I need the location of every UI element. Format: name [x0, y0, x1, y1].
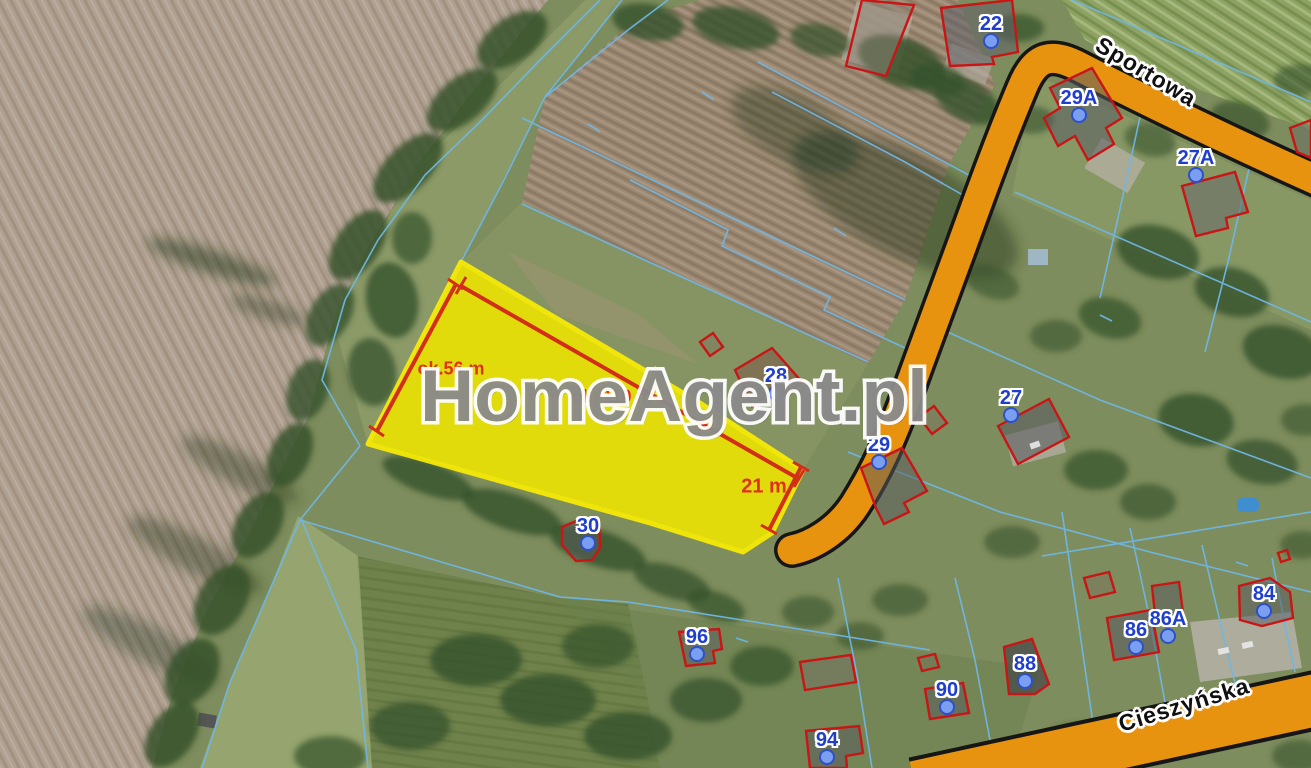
greenhouse: [1028, 249, 1048, 265]
building-86: [1107, 610, 1159, 660]
building-90: [925, 683, 969, 719]
swimming-pool: [1237, 498, 1259, 512]
aerial-map: 22 29A 27A 28 27 29 30 96 88 90 94 84 86…: [0, 0, 1311, 768]
shed-d: [918, 654, 939, 671]
map-canvas: [0, 0, 1311, 768]
building-96: [679, 629, 722, 666]
building-86A: [1152, 582, 1184, 624]
shed-c: [1084, 572, 1115, 598]
